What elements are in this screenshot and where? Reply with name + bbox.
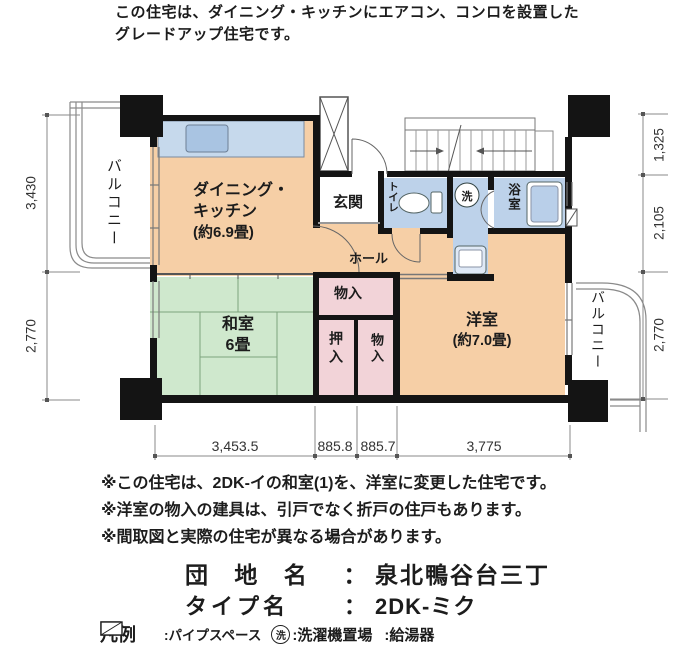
toilet-label: トイレ <box>386 181 401 213</box>
estate-name-row: 団 地 名：泉北鴨谷台三丁 <box>185 556 550 590</box>
legend-row: 凡例 :パイプスペース 洗 :洗濯機置場 :給湯器 <box>100 621 434 647</box>
estate-type-row: タイプ名：2DK-ミク <box>185 589 476 621</box>
washer-icon: 洗 <box>271 625 290 644</box>
water-heater <box>566 209 577 226</box>
oshiire-label: 押入 <box>326 331 346 367</box>
yoshitsu-label: 洋室 (約7.0畳) <box>432 311 532 351</box>
legend-pipe-label: :パイプスペース <box>164 624 261 644</box>
kitchen-sink <box>186 125 228 152</box>
stairs <box>405 118 553 176</box>
genkan-label: 玄関 <box>333 191 363 212</box>
dim-bottom-3775: 3,775 <box>466 438 501 454</box>
estate-type-label: タイプ名 <box>185 589 335 621</box>
notes-block: ※この住宅は、2DK-イの和室(1)を、洋室に変更した住宅です。 ※洋室の物入の… <box>101 470 556 551</box>
note-line-2: ※洋室の物入の建具は、引戸でなく折戸の住戸もあります。 <box>101 497 556 524</box>
dim-left-2770: 2,770 <box>24 319 39 353</box>
dim-right-1325: 1,325 <box>652 128 667 162</box>
legend-washer-label: :洗濯機置場 <box>292 624 372 645</box>
monoire-upper-label: 物入 <box>334 283 362 303</box>
dk-label: ダイニング・ キッチン (約6.9畳) <box>193 180 289 243</box>
header-line-2: グレードアップ住宅です。 <box>115 24 579 46</box>
dim-left-3430: 3,430 <box>24 176 39 210</box>
yoshitsu-label-line1: 洋室 <box>432 311 532 331</box>
washer-place-label: 洗 <box>462 188 473 204</box>
estate-name-label: 団 地 名 <box>185 556 335 590</box>
dk-label-line2: キッチン <box>193 201 289 222</box>
estate-type-colon: ： <box>335 589 375 621</box>
washitsu-label-line2: 6畳 <box>207 335 269 356</box>
note-line-3: ※間取図と実際の住宅が異なる場合があります。 <box>101 524 556 551</box>
washbasin <box>455 246 486 274</box>
dk-label-line1: ダイニング・ <box>193 180 289 201</box>
header-line-1: この住宅は、ダイニング・キッチンにエアコン、コンロを設置した <box>115 2 579 24</box>
balcony-left-label: バルコニー <box>103 158 124 248</box>
kitchen-counter <box>158 121 304 157</box>
dk-label-line3: (約6.9畳) <box>193 222 289 243</box>
dim-right-2770: 2,770 <box>652 318 667 352</box>
dim-right-2105: 2,105 <box>652 206 667 240</box>
dim-bottom-8858: 885.8 <box>317 438 352 454</box>
washitsu-label-line1: 和室 <box>207 314 269 335</box>
pipe-space <box>320 97 348 171</box>
dim-bottom-34535: 3,453.5 <box>212 438 259 454</box>
floorplan-page: この住宅は、ダイニング・キッチンにエアコン、コンロを設置した グレードアップ住宅… <box>0 0 700 650</box>
estate-name-colon: ： <box>335 556 375 590</box>
header-description: この住宅は、ダイニング・キッチンにエアコン、コンロを設置した グレードアップ住宅… <box>115 2 579 46</box>
estate-name-value: 泉北鴨谷台三丁 <box>375 562 550 588</box>
washer-icon-char: 洗 <box>271 625 290 644</box>
estate-type-value: 2DK-ミク <box>375 594 476 619</box>
yoshitsu-label-line2: (約7.0畳) <box>432 331 532 351</box>
bathtub <box>527 182 562 226</box>
bath-label: 浴室 <box>504 183 523 212</box>
monoire-lower-label: 物入 <box>367 333 386 365</box>
note-line-1: ※この住宅は、2DK-イの和室(1)を、洋室に変更した住宅です。 <box>101 470 556 497</box>
hall-label: ホール <box>349 248 388 267</box>
legend-heater-label: :給湯器 <box>384 624 434 645</box>
toilet-fixture <box>399 192 442 213</box>
dim-bottom-8857: 885.7 <box>360 438 395 454</box>
balcony-right-label: バルコニー <box>588 290 608 370</box>
washitsu-label: 和室 6畳 <box>207 314 269 356</box>
